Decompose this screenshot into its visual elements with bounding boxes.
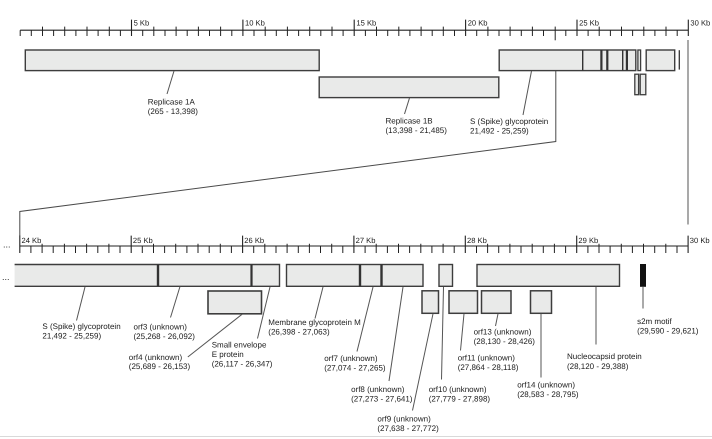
svg-text:orf9 (unknown): orf9 (unknown): [377, 414, 431, 423]
svg-text:(28,120 - 29,388): (28,120 - 29,388): [567, 362, 629, 371]
svg-text:orf8 (unknown): orf8 (unknown): [351, 385, 405, 394]
svg-text:24 Kb: 24 Kb: [22, 236, 42, 245]
svg-text:(25,268 - 26,092): (25,268 - 26,092): [134, 332, 196, 341]
svg-text:orf11 (unknown): orf11 (unknown): [458, 354, 516, 363]
svg-text:Nucleocapsid protein: Nucleocapsid protein: [567, 352, 642, 361]
svg-text:orf7 (unknown): orf7 (unknown): [324, 354, 378, 363]
svg-text:(13,398 - 21,485): (13,398 - 21,485): [386, 126, 448, 135]
svg-text:(29,590 - 29,621): (29,590 - 29,621): [637, 327, 699, 336]
svg-text:(25,689 - 26,153): (25,689 - 26,153): [129, 362, 191, 371]
svg-text:orf14 (unknown): orf14 (unknown): [517, 381, 575, 390]
svg-text:orf3 (unknown): orf3 (unknown): [134, 323, 188, 332]
svg-text:(27,864 - 28,118): (27,864 - 28,118): [458, 363, 519, 372]
svg-text:27 Kb: 27 Kb: [356, 236, 376, 245]
svg-text:Membrane glycoprotein M: Membrane glycoprotein M: [268, 318, 361, 327]
svg-text:10 Kb: 10 Kb: [245, 19, 265, 28]
svg-text:Replicase 1A: Replicase 1A: [148, 98, 196, 107]
svg-text:20 Kb: 20 Kb: [468, 19, 488, 28]
svg-text:(265 - 13,398): (265 - 13,398): [148, 107, 199, 116]
svg-text:25 Kb: 25 Kb: [579, 19, 599, 28]
svg-text:21,492 - 25,259): 21,492 - 25,259): [42, 331, 101, 340]
svg-text:(28,583 - 28,795): (28,583 - 28,795): [517, 390, 579, 399]
svg-text:(27,638 - 27,772): (27,638 - 27,772): [377, 424, 439, 433]
svg-text:(26,117 - 26,347): (26,117 - 26,347): [212, 360, 273, 369]
svg-text:...: ...: [2, 272, 10, 282]
svg-text:15 Kb: 15 Kb: [356, 19, 376, 28]
svg-text:orf13 (unknown): orf13 (unknown): [474, 327, 532, 336]
svg-text:orf4 (unknown): orf4 (unknown): [129, 353, 183, 362]
svg-text:...: ...: [3, 240, 11, 250]
svg-text:(28,130 - 28,426): (28,130 - 28,426): [474, 337, 536, 346]
svg-text:Replicase 1B: Replicase 1B: [386, 117, 433, 126]
svg-text:(26,398 - 27,063): (26,398 - 27,063): [268, 327, 330, 336]
svg-text:25 Kb: 25 Kb: [133, 236, 153, 245]
svg-text:21,492 - 25,259): 21,492 - 25,259): [470, 127, 529, 136]
svg-text:E protein: E protein: [212, 350, 244, 359]
svg-text:30 Kb: 30 Kb: [690, 236, 710, 245]
svg-text:s2m motif: s2m motif: [637, 317, 672, 326]
svg-text:29 Kb: 29 Kb: [578, 236, 598, 245]
svg-text:(27,273 - 27,641): (27,273 - 27,641): [351, 395, 413, 404]
svg-text:26 Kb: 26 Kb: [244, 236, 264, 245]
svg-text:30 Kb: 30 Kb: [690, 19, 710, 28]
svg-text:S (Spike) glycoprotein: S (Spike) glycoprotein: [470, 117, 548, 126]
svg-text:orf10 (unknown): orf10 (unknown): [429, 385, 487, 394]
svg-text:5 Kb: 5 Kb: [134, 19, 150, 28]
svg-text:(27,779 - 27,898): (27,779 - 27,898): [429, 395, 491, 404]
svg-text:28 Kb: 28 Kb: [467, 236, 487, 245]
svg-text:S (Spike) glycoprotein: S (Spike) glycoprotein: [42, 322, 120, 331]
svg-text:Small envelope: Small envelope: [212, 341, 267, 350]
svg-text:(27,074 - 27,265): (27,074 - 27,265): [324, 364, 386, 373]
